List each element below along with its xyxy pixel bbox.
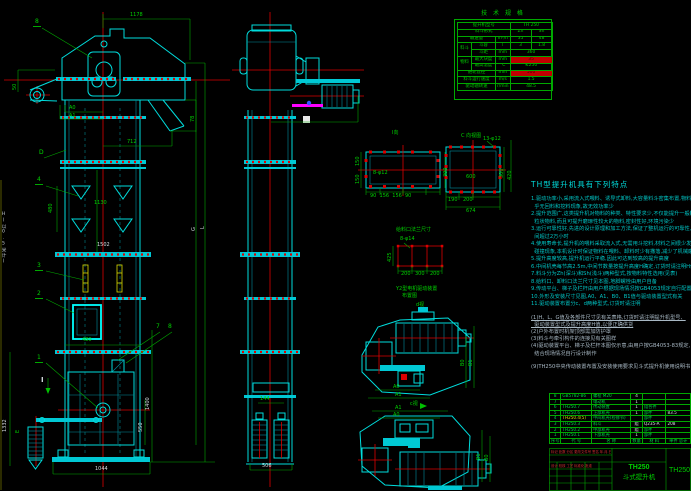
view-i-holes: 8-φ12 bbox=[373, 171, 388, 176]
front-label-8b: 8 bbox=[168, 324, 172, 330]
titleblock-signature-row: 设计 校核 工艺 标准化 批准 bbox=[551, 464, 611, 468]
front-label-e: E bbox=[16, 430, 21, 433]
spec-cell: 料斗形式 bbox=[458, 29, 511, 36]
drive-caption-2: 布置图 bbox=[402, 294, 417, 299]
bom-header-cell: 序号 bbox=[550, 438, 561, 444]
side-dim-506: 506 bbox=[262, 464, 272, 469]
bom-header-cell: 单件 总计 bbox=[666, 438, 691, 444]
spec-row: 物料最大块度mm35 bbox=[458, 56, 553, 63]
front-label-g: G bbox=[192, 227, 197, 231]
spec-cell: 输送量 bbox=[458, 36, 496, 43]
features-line: 8.给料口、卸料口法兰尺寸见本图,地脚螺栓由用户自备 bbox=[531, 279, 691, 287]
front-dim-50: 50 bbox=[13, 84, 18, 90]
features-line: 6.中间机壳每节高2.5m,中间节数量按提升高度H确定,订货时请注明H值 bbox=[531, 264, 691, 272]
spec-cell: 最大块度 bbox=[472, 56, 496, 63]
features-line: 粒状物料,而且可提升磨琢性较大的物料,密封性好,环境污染少 bbox=[531, 219, 691, 227]
front-dim-1400: 1400 bbox=[146, 397, 151, 410]
drive-lower-a1: A1 bbox=[395, 406, 402, 411]
features-line: 9.传动平台、梯子及栏杆由用户根据现场情况按GB4053规定自行配置 bbox=[531, 286, 691, 294]
spec-cell: mm bbox=[496, 70, 511, 77]
spec-cell: 1.8 bbox=[531, 43, 552, 50]
spec-cell-highlight: 500 bbox=[510, 70, 552, 77]
view-i-title: I向 bbox=[392, 131, 398, 136]
features-note: 驱动装置型式及提升高度H值,以便正确供货 bbox=[531, 322, 691, 329]
spec-row: 料斗形式ZhSh bbox=[458, 29, 553, 36]
spec-cell: 链轮直径 bbox=[458, 70, 496, 77]
drive-caption-1: Y2型电机驱动装置 bbox=[396, 287, 437, 292]
spec-row: 料斗斗容l31.8 bbox=[458, 43, 553, 50]
spec-cell: m/s bbox=[496, 77, 511, 84]
spec-cell: Zh bbox=[510, 29, 531, 36]
titleblock-product-name: 斗式提升机 bbox=[610, 474, 668, 481]
bom-header-cell: 材 料 bbox=[642, 438, 666, 444]
side-view-geometry bbox=[232, 12, 364, 487]
drive-upper-geometry bbox=[362, 307, 474, 398]
front-dim-480-mid: 480 bbox=[49, 203, 54, 213]
spec-cell: 斗距 bbox=[472, 50, 496, 57]
features-line: 5.提升高度较高,提升机运行平稳,因此可达到较高的提升高度 bbox=[531, 256, 691, 264]
view-i-dim-right: 300 bbox=[444, 167, 449, 177]
view-c-dim-inner: 600 bbox=[466, 175, 476, 180]
features-line: 乎无回料和挖料现象,故无效功率少 bbox=[531, 204, 691, 212]
front-dim-1044: 1044 bbox=[95, 467, 108, 472]
front-label-a1: A1 bbox=[69, 114, 76, 119]
view-c-dim-total: 674 bbox=[466, 209, 476, 214]
bom-cell: 中间机壳(检修节) bbox=[592, 416, 631, 422]
front-label-l: L bbox=[201, 226, 206, 229]
features-line: 3.运行可靠性好,先进的设计原理和加工方法,保证了整机运行的可靠性,无故障时 bbox=[531, 226, 691, 234]
front-dim-480-boot: 480 bbox=[82, 338, 92, 343]
front-section-mark: I bbox=[41, 378, 44, 383]
features-line: 7.料斗分为Zh(深斗)和Sh(浅斗)两种型式,按物料特性选用(见表) bbox=[531, 271, 691, 279]
spec-cell: Sh bbox=[531, 29, 552, 36]
spec-cell: ℃ bbox=[496, 63, 511, 70]
features-line: 4.使用寿命长,提升机的喂料采取流入式,无需用斗挖料,材料之间很少发生挤压和 bbox=[531, 241, 691, 249]
feed-dim-b1: 200 bbox=[401, 272, 411, 277]
bom-header-cell: 代 号 bbox=[561, 438, 592, 444]
drive-view-c-label: c视 bbox=[410, 402, 418, 407]
bom-header-row: 序号代 号名 称数量材 料单件 总计 bbox=[550, 438, 691, 444]
flange-detail-i-geometry bbox=[358, 145, 448, 196]
drive-upper-a0: A0 bbox=[393, 385, 400, 390]
spec-cell: 最高温度 bbox=[472, 63, 496, 70]
spec-cell: mm bbox=[496, 56, 511, 63]
features-line: 10.外形及安装尺寸见图,A0、A1、B0、B1值与驱动装置型式有关 bbox=[531, 294, 691, 302]
spec-cell: m³/h bbox=[496, 36, 511, 43]
spec-cell: 驱动轴转速 bbox=[458, 84, 496, 91]
view-i-dim-left-top: 150 bbox=[356, 156, 361, 166]
titleblock-revision-row: 标记 处数 分区 更改文件号 签名 年.月.日 bbox=[551, 450, 611, 454]
spec-table: 提升机型号TH 250 料斗形式ZhSh 输送量m³/h3548 料斗斗容l31… bbox=[457, 22, 553, 91]
feed-flange-title: 给料口法兰尺寸 bbox=[396, 228, 431, 233]
drive-lower-geometry bbox=[358, 403, 491, 490]
view-c-dim-r2: 420 bbox=[508, 170, 513, 180]
spec-cell: 360 bbox=[510, 50, 552, 57]
spec-row: 料斗运行速度m/s1.5 bbox=[458, 77, 553, 84]
front-balloon-4: 4 bbox=[35, 177, 43, 185]
front-dim-top: 1178 bbox=[130, 13, 143, 18]
spec-table-title: 技 术 规 格 bbox=[457, 11, 549, 17]
spec-cell: 48 bbox=[531, 36, 552, 43]
features-line: 1.驱动功率小,采用流入式喂料、诱导式卸料,大容量料斗密集布置,物料提升时几 bbox=[531, 196, 691, 204]
spec-cell: 物料 bbox=[458, 56, 472, 70]
view-c-title: C 向视图 bbox=[461, 134, 481, 139]
front-label-d: D bbox=[39, 150, 44, 156]
front-dim-1332: 1332 bbox=[3, 419, 8, 432]
spec-cell: 料斗 bbox=[458, 43, 472, 57]
drive-view-d-label: d视 bbox=[416, 303, 424, 308]
spec-cell: 48.5 bbox=[510, 84, 552, 91]
drive-lower-a0: A0 bbox=[393, 413, 400, 418]
titleblock-model: TH250 bbox=[612, 464, 666, 471]
features-note: 结合现场情况自行设计制作 bbox=[531, 351, 691, 358]
bom-header-cell: 数量 bbox=[631, 438, 643, 444]
front-balloon-3: 3 bbox=[35, 263, 43, 271]
spec-row: 输送量m³/h3548 bbox=[458, 36, 553, 43]
features-note: (1)H、L、G值及各部件尺寸见有关表格,订货时请注明提升机型号、 bbox=[531, 315, 691, 322]
front-dim-78: 78 bbox=[191, 116, 196, 122]
spec-row: 最高温度℃≤250 bbox=[458, 63, 553, 70]
features-line: 11.驱动装置布置分c、d两种型式,订货时请注明 bbox=[531, 301, 691, 309]
features-line: 碰撞现象,本机设计时保证物料在喂料、卸料时少有撒落,减少了机械磨损 bbox=[531, 249, 691, 257]
spec-cell: ≤250 bbox=[510, 63, 552, 70]
spec-cell: 料斗运行速度 bbox=[458, 77, 496, 84]
feed-dim-b2: 300 bbox=[415, 272, 425, 277]
titleblock-drawing-code: TH250 bbox=[669, 467, 690, 474]
spec-cell: l bbox=[496, 43, 511, 50]
spec-cell: r/min bbox=[496, 84, 511, 91]
spec-cell: 3 bbox=[510, 43, 531, 50]
side-dim-144: 144 bbox=[260, 397, 270, 402]
front-label-h: H(以0.5米计) bbox=[1, 212, 6, 265]
spec-row: 驱动轴转速r/min48.5 bbox=[458, 84, 553, 91]
features-text-block: TH型提升机具有下列特点 1.驱动功率小,采用流入式喂料、诱导式卸料,大容量料斗… bbox=[531, 180, 691, 371]
features-title: TH型提升机具有下列特点 bbox=[531, 180, 691, 189]
bom-header-cell: 名 称 bbox=[592, 438, 631, 444]
front-dim-712: 712 bbox=[127, 140, 137, 145]
features-note-9: (9)TH250中央传动装置布置及安装使用要求见斗式提升机使用说明书 bbox=[531, 364, 691, 371]
front-dim-1130: 1130 bbox=[94, 201, 107, 206]
front-balloon-8: 8 bbox=[33, 19, 41, 27]
spec-cell-highlight: 35 bbox=[510, 56, 552, 63]
drive-upper-b1: B1 bbox=[469, 359, 474, 366]
spec-cell: 提升机型号 bbox=[458, 23, 511, 30]
drive-lower-b1: B1 bbox=[477, 453, 482, 460]
features-line: 间超过2万小时 bbox=[531, 234, 691, 242]
features-note: (4)驱动装置平台、梯子及栏杆本图仅示意,由用户按GB4053-83规定, bbox=[531, 343, 691, 350]
feed-dim-left: 425 bbox=[388, 252, 393, 262]
front-balloon-1: 1 bbox=[35, 355, 43, 363]
view-c-dim-b2: 200 bbox=[463, 198, 473, 203]
view-c-dim-r1: 300 bbox=[500, 168, 505, 178]
view-i-dim-left-bottom: 150 bbox=[356, 174, 361, 184]
view-c-dim-b1: 190 bbox=[448, 198, 458, 203]
spec-cell: TH 250 bbox=[510, 23, 552, 30]
view-c-holes: 13-φ12 bbox=[483, 137, 501, 142]
front-label-a0: A0 bbox=[69, 106, 76, 111]
drive-upper-a1: A1 bbox=[395, 393, 402, 398]
feed-dim-b3: 200 bbox=[430, 272, 440, 277]
front-view-dimensions bbox=[10, 14, 215, 474]
front-label-7: 7 bbox=[156, 324, 160, 330]
spec-row: 斗距mm360 bbox=[458, 50, 553, 57]
front-dim-1502: 1502 bbox=[97, 243, 110, 248]
spec-row: 链轮直径mm500 bbox=[458, 70, 553, 77]
cad-drawing-canvas: 技 术 规 格 提升机型号TH 250 料斗形式ZhSh 输送量m³/h3548… bbox=[0, 0, 691, 491]
drive-lower-b0: B0 bbox=[485, 454, 490, 461]
feed-flange-geometry bbox=[393, 243, 443, 274]
spec-cell: mm bbox=[496, 50, 511, 57]
feed-flange-holes: 8-φ14 bbox=[400, 237, 415, 242]
spec-row: 提升机型号TH 250 bbox=[458, 23, 553, 30]
drive-upper-b0: B0 bbox=[461, 359, 466, 366]
bom-table: 8GB5782-86螺栓 M204 7电动机1 6TH250.7传动装置1组合件… bbox=[549, 393, 691, 444]
front-dim-550: 550 bbox=[139, 422, 144, 432]
front-balloon-2: 2 bbox=[35, 291, 43, 299]
spec-cell: 斗容 bbox=[472, 43, 496, 50]
view-i-dims-bottom: 90 156 156 90 bbox=[370, 194, 411, 199]
features-line: 2.提升范围广,这类提升机对物料的种类、特性要求少,不仅能提升一般粉状、小颗 bbox=[531, 211, 691, 219]
spec-cell: 35 bbox=[510, 36, 531, 43]
spec-cell: 1.5 bbox=[510, 77, 552, 84]
